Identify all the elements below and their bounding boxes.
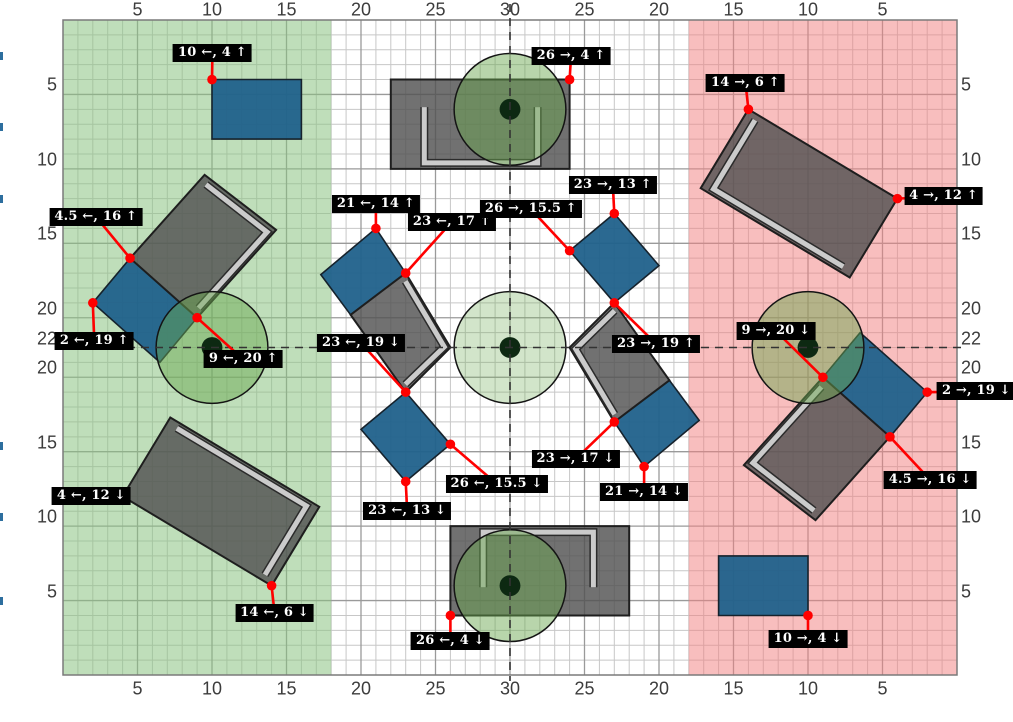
callout-dot-2: [744, 105, 754, 115]
edge-mark: [0, 195, 3, 203]
callout-dot-17: [446, 439, 456, 449]
callout-line-6: [406, 222, 452, 273]
callout-line-14: [927, 391, 976, 392]
edge-mark: [0, 52, 3, 60]
callout-dot-9: [88, 298, 98, 308]
floor-plan: 5101520253025201510551015202530252015105…: [0, 0, 1013, 722]
callout-dot-0: [207, 75, 217, 85]
edge-mark: [0, 123, 3, 131]
northeast-chair: [570, 214, 659, 303]
callout-dot-23: [803, 611, 813, 621]
callout-dot-10: [192, 313, 202, 323]
callout-dot-13: [818, 372, 828, 382]
callout-line-17: [450, 444, 496, 483]
callout-line-18: [576, 422, 615, 459]
callout-dot-14: [922, 387, 932, 397]
edge-mark: [0, 513, 3, 521]
callout-dot-1: [565, 75, 575, 85]
bottom-right-chair: [719, 556, 808, 616]
callout-line-9: [93, 303, 94, 341]
callout-dot-22: [446, 611, 456, 621]
top-left-chair: [212, 80, 301, 140]
callout-dot-6: [401, 268, 411, 278]
edge-mark: [0, 597, 3, 605]
callout-dot-3: [893, 194, 903, 204]
callout-dot-19: [639, 462, 649, 472]
edge-mark: [0, 442, 3, 450]
callout-dot-16: [401, 477, 411, 487]
callout-dot-8: [610, 209, 620, 219]
floor-plan-canvas: [0, 0, 1013, 722]
callout-dot-7: [565, 246, 575, 256]
callout-dot-15: [118, 492, 128, 502]
callout-dot-11: [401, 387, 411, 397]
callout-dot-21: [267, 581, 277, 591]
callout-dot-18: [610, 417, 620, 427]
southwest-chair: [361, 392, 450, 481]
callout-dot-12: [610, 298, 620, 308]
callout-dot-5: [371, 224, 381, 234]
callout-dot-4: [125, 253, 135, 263]
callout-line-7: [531, 209, 570, 251]
callout-dot-20: [885, 432, 895, 442]
